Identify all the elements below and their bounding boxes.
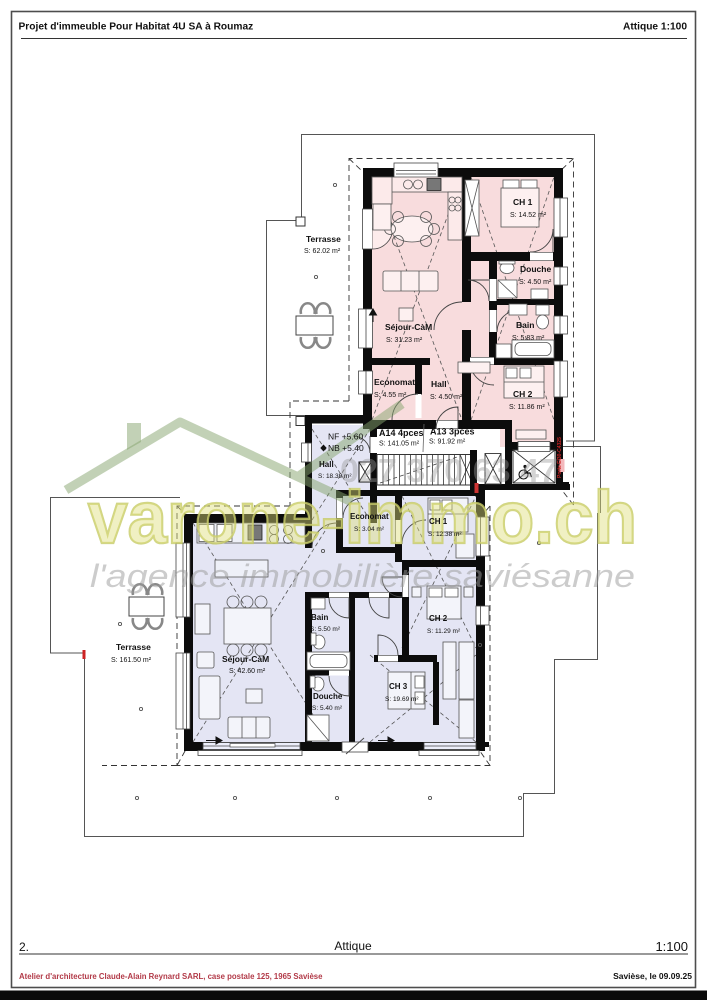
svg-text:S: 4.50 m²: S: 4.50 m² — [519, 279, 552, 286]
svg-text:NB +5.40: NB +5.40 — [328, 443, 364, 453]
svg-text:S: 5.83 m²: S: 5.83 m² — [512, 335, 545, 342]
svg-text:S: 3.04 m²: S: 3.04 m² — [354, 526, 385, 533]
svg-text:S: 42.60 m²: S: 42.60 m² — [229, 668, 266, 675]
svg-text:S: 11.29 m²: S: 11.29 m² — [427, 628, 461, 635]
svg-text:Savièse, le 09.09.25: Savièse, le 09.09.25 — [613, 971, 692, 981]
svg-text:l'agence immobilière saviésann: l'agence immobilière saviésanne — [90, 558, 635, 594]
svg-text:S: 14.52 m²: S: 14.52 m² — [510, 212, 547, 219]
svg-text:Projet d'immeuble Pour Habitat: Projet d'immeuble Pour Habitat 4U SA à R… — [19, 22, 254, 33]
svg-text:S: 31.23 m²: S: 31.23 m² — [386, 337, 423, 344]
svg-text:Douche: Douche — [520, 264, 551, 274]
svg-text:S: 12.38 m²: S: 12.38 m² — [428, 531, 462, 538]
svg-text:Attique 1:100: Attique 1:100 — [623, 22, 687, 33]
svg-text:S: 161.50 m²: S: 161.50 m² — [111, 657, 152, 664]
svg-text:CH 2: CH 2 — [429, 614, 448, 623]
svg-text:NF +5.60: NF +5.60 — [328, 432, 363, 442]
svg-text:S: 141.05 m²: S: 141.05 m² — [379, 441, 420, 448]
svg-text:Séjour-CàM: Séjour-CàM — [385, 322, 432, 332]
svg-text:S: 18.39 m²: S: 18.39 m² — [318, 473, 352, 480]
svg-text:2.: 2. — [19, 940, 29, 954]
svg-text:A14 4pces: A14 4pces — [379, 428, 424, 438]
svg-text:Economat: Economat — [350, 512, 389, 521]
svg-text:Bain: Bain — [516, 320, 534, 330]
svg-text:Hall: Hall — [431, 379, 447, 389]
svg-text:Economat: Economat — [374, 377, 415, 387]
svg-text:A13 3pces: A13 3pces — [430, 427, 475, 437]
svg-text:S: 62.02 m²: S: 62.02 m² — [304, 248, 341, 255]
svg-text:S: 19.69 m²: S: 19.69 m² — [385, 696, 419, 703]
svg-text:S: 5.50 m²: S: 5.50 m² — [310, 626, 341, 633]
svg-text:CH 1: CH 1 — [513, 197, 533, 207]
svg-text:Bain: Bain — [311, 613, 328, 622]
svg-text:S: 4.55 m²: S: 4.55 m² — [374, 392, 407, 399]
svg-text:Séjour-CàM: Séjour-CàM — [222, 654, 269, 664]
svg-text:S: 11.86 m²: S: 11.86 m² — [509, 404, 545, 411]
svg-text:S: 5.40 m²: S: 5.40 m² — [312, 705, 343, 712]
svg-text:Atelier d'architecture Claude-: Atelier d'architecture Claude-Alain Reyn… — [19, 972, 323, 981]
svg-text:Hall: Hall — [319, 460, 334, 469]
svg-text:S: 4.50 m²: S: 4.50 m² — [430, 394, 463, 401]
svg-text:CH 2: CH 2 — [513, 389, 533, 399]
svg-text:Terrasse: Terrasse — [116, 642, 151, 652]
svg-text:CH 1: CH 1 — [429, 517, 448, 526]
svg-text:CH 3: CH 3 — [389, 682, 408, 691]
svg-text:Douche: Douche — [313, 692, 343, 701]
svg-text:Attique: Attique — [334, 939, 372, 953]
svg-text:S: 91.92 m²: S: 91.92 m² — [429, 439, 466, 446]
svg-text:Terrasse: Terrasse — [306, 234, 341, 244]
svg-text:1:100: 1:100 — [655, 939, 688, 954]
